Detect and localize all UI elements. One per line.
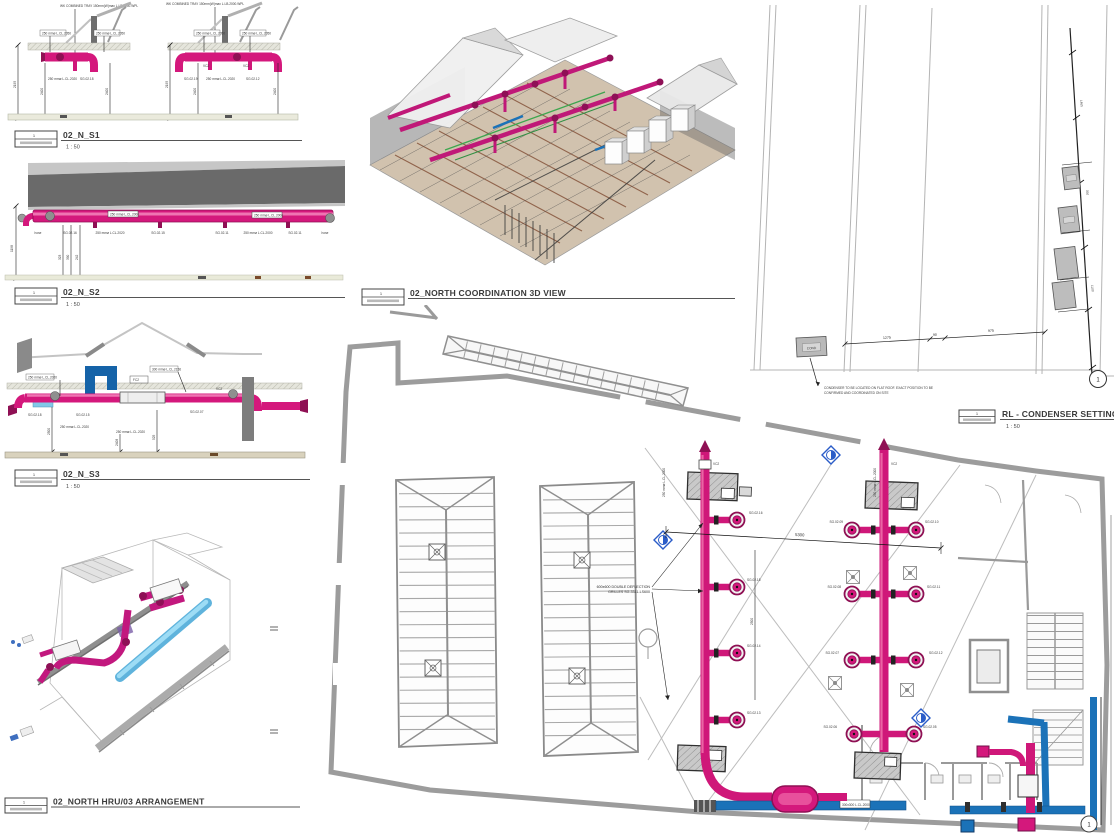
drawing-sheet: WK COMBINED TRAY 150mm(W)max L.LB.2000.W… xyxy=(0,0,1114,834)
view-coordination-3d[interactable]: 1 02_NORTH COORDINATION 3D VIEW xyxy=(355,10,740,310)
s3-column xyxy=(242,377,254,441)
s1-ceiling-bands xyxy=(28,43,280,50)
svg-text:600x600 DOUBLE DEFLECTION: 600x600 DOUBLE DEFLECTION xyxy=(597,585,651,589)
svg-text:5300: 5300 xyxy=(795,532,805,538)
svg-text:SG.02.13: SG.02.13 xyxy=(747,711,761,715)
svg-text:250 mmø L.CL.2020: 250 mmø L.CL.2020 xyxy=(28,376,57,380)
svg-text:SG.02.10: SG.02.10 xyxy=(925,520,939,524)
svg-text:SG.02.06: SG.02.06 xyxy=(824,725,838,729)
svg-text:VC2: VC2 xyxy=(203,64,209,68)
view-section-s1[interactable]: WK COMBINED TRAY 150mm(W)max L.LB.2000.W… xyxy=(0,0,330,158)
svg-text:2400: 2400 xyxy=(105,88,109,95)
svg-text:VC2: VC2 xyxy=(891,462,897,466)
svg-text:250 mmø L.CL.2000: 250 mmø L.CL.2000 xyxy=(243,231,272,235)
svg-text:250 mmø L.CL.2000: 250 mmø L.CL.2000 xyxy=(873,468,877,497)
svg-text:300x300 L.CL.2000: 300x300 L.CL.2000 xyxy=(842,803,870,807)
svg-text:250 mmø L.CL.2050: 250 mmø L.CL.2050 xyxy=(96,32,125,36)
svg-text:VC2: VC2 xyxy=(713,462,719,466)
svg-text:1198: 1198 xyxy=(10,245,14,252)
s3-roof xyxy=(17,323,262,373)
svg-text:1465: 1465 xyxy=(1079,100,1084,108)
s3-ceiling-band xyxy=(7,383,302,389)
svg-text:SG.02.18: SG.02.18 xyxy=(28,413,42,417)
view-hru-3d[interactable]: 1 02_NORTH HRU/03 ARRANGEMENT xyxy=(0,530,305,834)
roof-fan-icon xyxy=(569,668,585,684)
svg-text:SG.02.14: SG.02.14 xyxy=(747,644,761,648)
plan-skylight-a xyxy=(396,477,497,747)
ceiling-device-icon xyxy=(829,677,842,690)
roof-fan-icon xyxy=(425,660,441,676)
svg-text:525: 525 xyxy=(152,434,156,440)
svg-text:SG.02.09: SG.02.09 xyxy=(830,520,844,524)
hru3d-bottom-band xyxy=(97,647,229,752)
svg-text:323: 323 xyxy=(58,254,62,260)
plan-stairs xyxy=(1027,613,1083,765)
s1-roof xyxy=(66,3,298,47)
svg-text:2500: 2500 xyxy=(750,618,754,625)
svg-text:250 mmø L.CL.2000: 250 mmø L.CL.2000 xyxy=(662,468,666,497)
svg-text:250 mmø L.CL.2020: 250 mmø L.CL.2020 xyxy=(95,231,124,235)
roof-fan-icon xyxy=(429,544,445,560)
svg-text:2195: 2195 xyxy=(165,81,169,88)
hru3d-roof-plane xyxy=(62,557,133,583)
plan-column-circle xyxy=(639,629,657,647)
svg-text:242: 242 xyxy=(75,254,79,260)
ceiling-device-icon xyxy=(847,571,860,584)
svg-text:SG.02.08: SG.02.08 xyxy=(828,585,842,589)
svg-text:250 mmø L.CL.2000: 250 mmø L.CL.2000 xyxy=(110,213,139,217)
svg-text:250 mmø L.CL.2020: 250 mmø L.CL.2020 xyxy=(206,77,235,81)
hru3d-title-block: 1 02_NORTH HRU/03 ARRANGEMENT xyxy=(5,797,300,814)
svg-text:GRILLES SG-3311-LS600: GRILLES SG-3311-LS600 xyxy=(608,590,650,594)
view-section-s3[interactable]: 250 mmø L.CL.2020 300 mmø L.CL.2156 VC2 … xyxy=(0,310,315,510)
svg-text:250 mmø L.CL.2000: 250 mmø L.CL.2000 xyxy=(254,214,283,218)
s3-blue-duct xyxy=(90,371,112,394)
svg-text:SG.02.11: SG.02.11 xyxy=(927,585,940,589)
plan-detail-marker: 1 xyxy=(1081,816,1097,832)
ceiling-device-icon xyxy=(904,567,917,580)
svg-text:SG.02.16: SG.02.16 xyxy=(749,511,763,515)
s2-roof-band xyxy=(28,160,345,210)
svg-text:2500: 2500 xyxy=(47,428,51,435)
s2-floor xyxy=(5,275,343,280)
ceiling-device-icon xyxy=(901,684,914,697)
view-title: 02_N_S2 xyxy=(63,287,100,297)
plan-hru-unit-4 xyxy=(854,752,901,780)
svg-text:SG.02.07: SG.02.07 xyxy=(190,410,204,414)
view-title: 02_NORTH COORDINATION 3D VIEW xyxy=(410,288,567,298)
roof-fan-icon xyxy=(574,552,590,568)
hru3d-right-marks xyxy=(270,627,278,733)
view-scale: 1 : 50 xyxy=(66,302,80,308)
s2-duct-tags: hose SG.02.16 250 mmø L.CL.2020 SG.02.15… xyxy=(35,231,329,235)
s1-pink-ducts xyxy=(41,52,278,72)
s3-floor xyxy=(5,452,305,458)
view-section-s2[interactable]: 250 mmø L.CL.2000 250 mmø L.CL.2000 hose… xyxy=(0,160,345,310)
svg-text:2400: 2400 xyxy=(193,88,197,95)
svg-text:250 mmø L.CL.2020: 250 mmø L.CL.2020 xyxy=(116,430,145,434)
hru3d-wireframe xyxy=(40,533,230,743)
hru3d-cyan-duct xyxy=(119,602,207,677)
svg-text:SG.02.19: SG.02.19 xyxy=(184,77,198,81)
svg-text:2408: 2408 xyxy=(115,439,119,446)
coord3d-title-block: 1 02_NORTH COORDINATION 3D VIEW xyxy=(362,288,735,305)
svg-text:VC2: VC2 xyxy=(216,387,222,391)
plan-top-fragments xyxy=(390,305,437,319)
svg-text:VC2: VC2 xyxy=(243,64,249,68)
plan-skylight-b xyxy=(540,482,638,756)
svg-text:250 mmø L.CL.2050: 250 mmø L.CL.2050 xyxy=(242,32,271,36)
svg-text:390: 390 xyxy=(66,254,70,260)
svg-text:SG.02.11: SG.02.11 xyxy=(288,231,301,235)
svg-text:1100: 1100 xyxy=(1090,285,1095,293)
svg-text:SG.02.07: SG.02.07 xyxy=(826,651,840,655)
svg-text:350: 350 xyxy=(1085,190,1090,196)
svg-text:250 mmø L.CL.2050: 250 mmø L.CL.2050 xyxy=(42,32,71,36)
view-floor-plan[interactable]: 300x300 L.CL.2000 600x600 DOUBLE DEFLECT… xyxy=(325,305,1114,834)
svg-text:250 mmø L.CL.2020: 250 mmø L.CL.2020 xyxy=(48,77,77,81)
s2-pink-duct: 250 mmø L.CL.2000 250 mmø L.CL.2000 xyxy=(18,210,335,228)
view-title: 02_N_S1 xyxy=(63,130,100,140)
svg-text:300 mmø L.CL.2156: 300 mmø L.CL.2156 xyxy=(152,368,181,372)
svg-text:hose: hose xyxy=(322,231,329,235)
svg-text:SG.02.18: SG.02.18 xyxy=(80,77,94,81)
svg-text:2195: 2195 xyxy=(13,81,17,88)
s2-title-block: 1 02_N_S2 1 : 50 xyxy=(15,287,345,308)
svg-text:WK COMBINED TRAY 150mm(W)max L: WK COMBINED TRAY 150mm(W)max L.LB.2000.W… xyxy=(166,2,244,6)
svg-text:FC2: FC2 xyxy=(133,378,139,382)
svg-text:250 mmø L.CL.2020: 250 mmø L.CL.2020 xyxy=(60,425,89,429)
svg-text:SG.02.12: SG.02.12 xyxy=(246,77,260,81)
svg-text:SG.02.15: SG.02.15 xyxy=(151,231,165,235)
s3-title-block: 1 02_N_S3 1 : 50 xyxy=(15,469,310,490)
plan-elevator xyxy=(970,640,1008,692)
svg-text:250 mmø L.CL.2050: 250 mmø L.CL.2050 xyxy=(196,32,225,36)
svg-text:SG.02.16: SG.02.16 xyxy=(63,231,77,235)
s1-floor xyxy=(8,114,298,120)
svg-text:2400: 2400 xyxy=(40,88,44,95)
view-title: 02_N_S3 xyxy=(63,469,100,479)
svg-text:SG.02.15: SG.02.15 xyxy=(76,413,90,417)
svg-text:2400: 2400 xyxy=(273,88,277,95)
svg-text:SG.02.12: SG.02.12 xyxy=(929,651,943,655)
view-title: 02_NORTH HRU/03 ARRANGEMENT xyxy=(53,797,205,807)
view-scale: 1 : 50 xyxy=(66,145,80,151)
svg-text:hose: hose xyxy=(35,231,42,235)
view-scale: 1 : 50 xyxy=(66,484,80,490)
s1-title-block: 1 02_N_S1 1 : 50 xyxy=(15,130,302,151)
svg-text:SG.02.11: SG.02.11 xyxy=(215,231,228,235)
svg-text:SG.02.15: SG.02.15 xyxy=(747,578,761,582)
svg-text:SG.02.05: SG.02.05 xyxy=(923,725,937,729)
